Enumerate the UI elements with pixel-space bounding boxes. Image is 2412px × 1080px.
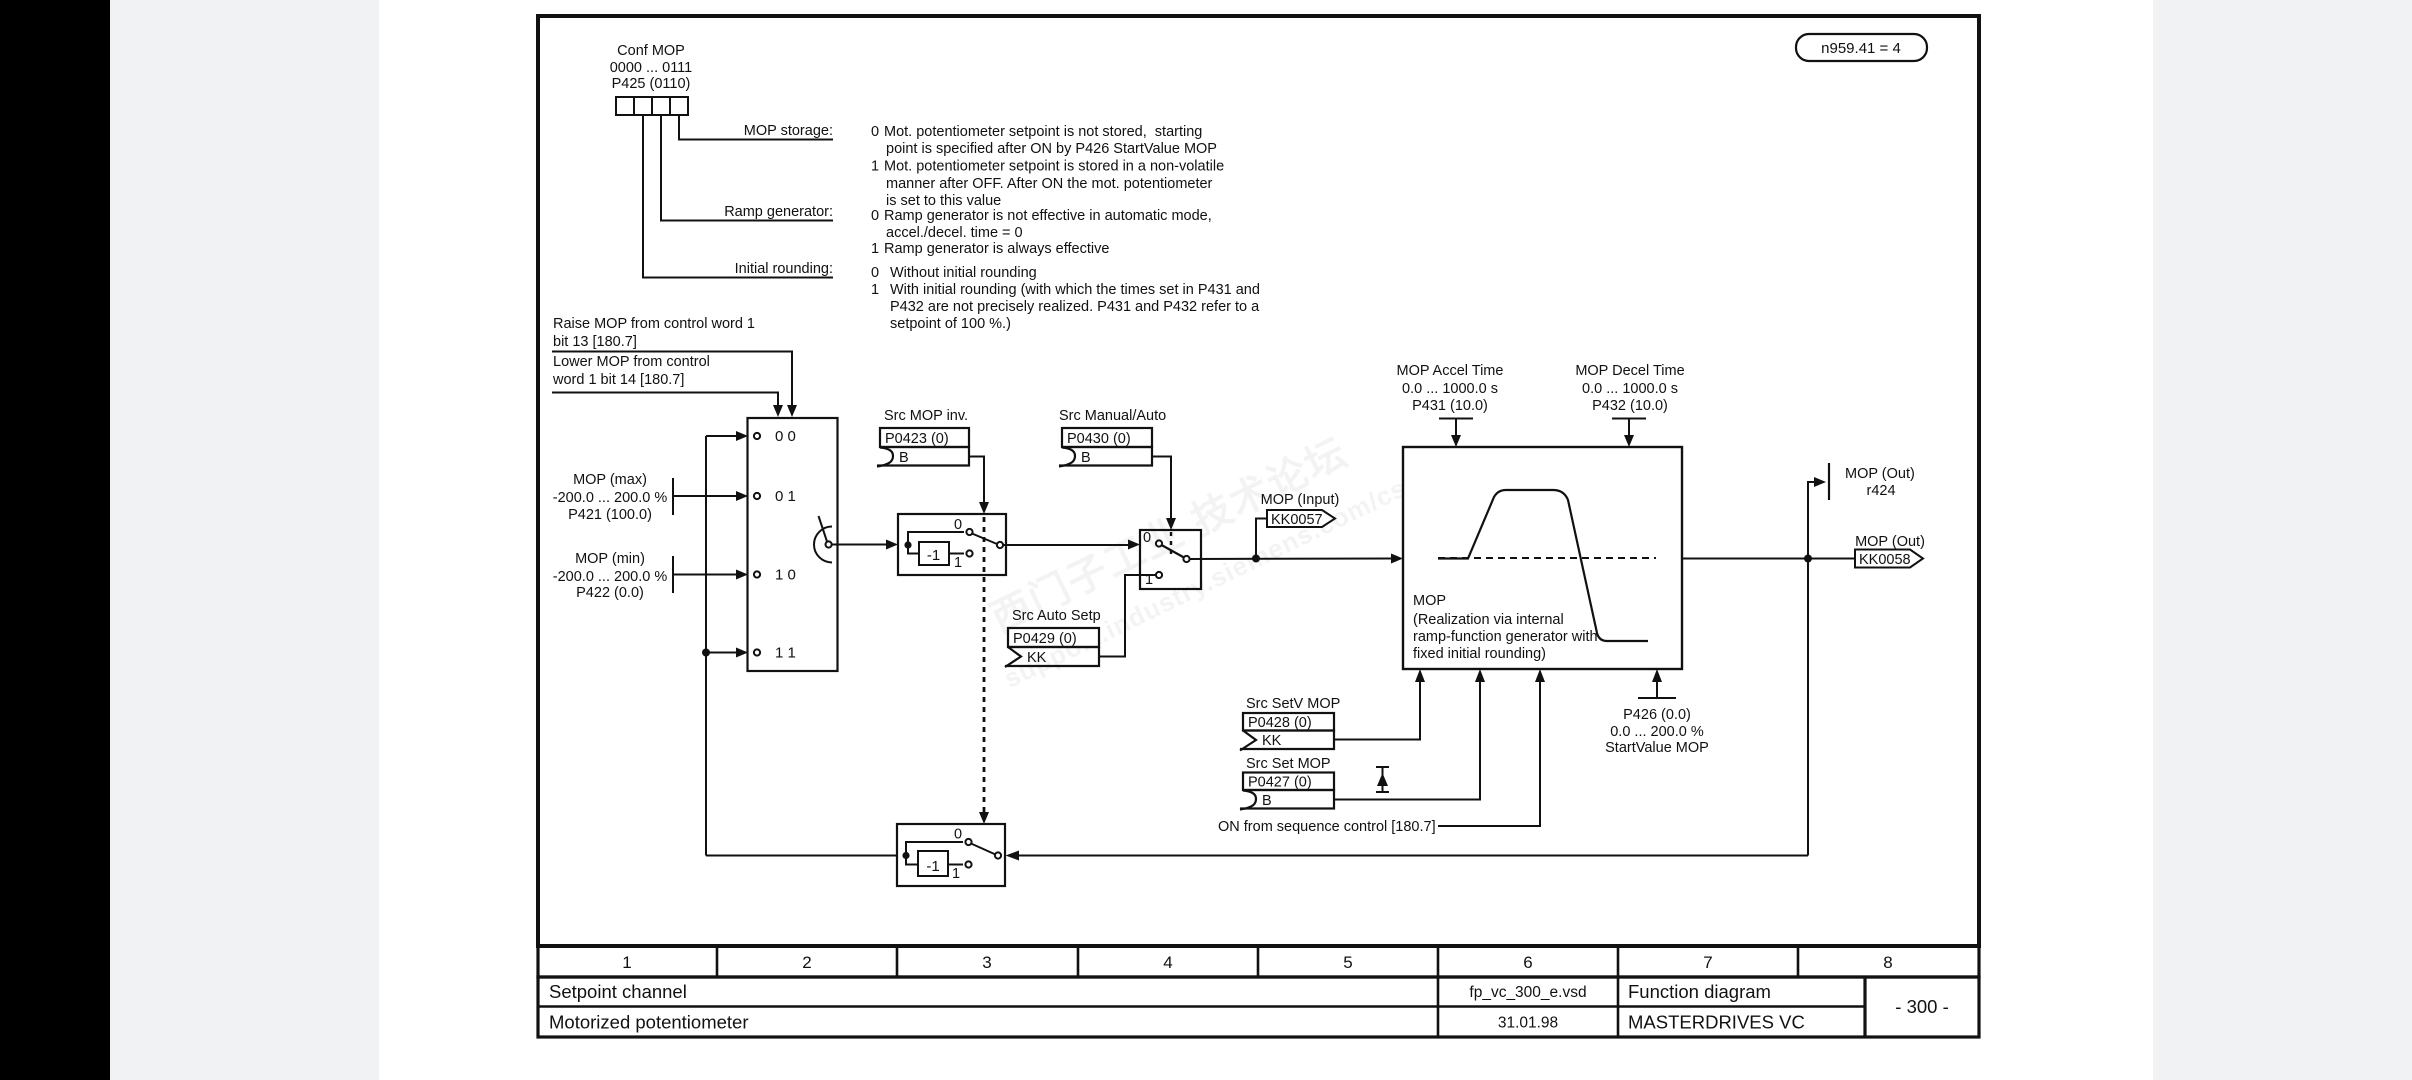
svg-text:0 1: 0 1 bbox=[775, 488, 796, 505]
svg-text:Raise MOP from control word 1: Raise MOP from control word 1 bbox=[553, 316, 755, 332]
svg-text:0: 0 bbox=[1143, 530, 1151, 546]
svg-text:0000 ... 0111: 0000 ... 0111 bbox=[610, 60, 693, 76]
svg-text:1: 1 bbox=[871, 159, 879, 175]
svg-text:5: 5 bbox=[1343, 953, 1352, 972]
svg-text:B: B bbox=[1081, 450, 1091, 466]
svg-text:word 1 bit 14 [180.7]: word 1 bit 14 [180.7] bbox=[552, 372, 684, 388]
svg-text:Mot. potentiometer setpoint is: Mot. potentiometer setpoint is not store… bbox=[884, 124, 1202, 140]
svg-text:3: 3 bbox=[982, 953, 991, 972]
svg-text:Ramp generator is not effectiv: Ramp generator is not effective in autom… bbox=[884, 208, 1212, 224]
svg-text:manner after OFF. After ON the: manner after OFF. After ON the mot. pote… bbox=[886, 176, 1213, 192]
svg-text:Setpoint channel: Setpoint channel bbox=[549, 981, 687, 1002]
svg-text:setpoint of 100 %.): setpoint of 100 %.) bbox=[890, 316, 1011, 332]
svg-text:P432 are not precisely realize: P432 are not precisely realized. P431 an… bbox=[890, 299, 1260, 315]
svg-text:0.0 ... 1000.0 s: 0.0 ... 1000.0 s bbox=[1402, 381, 1498, 397]
svg-text:P422 (0.0): P422 (0.0) bbox=[576, 585, 644, 601]
svg-text:1: 1 bbox=[871, 282, 879, 298]
svg-text:Conf MOP: Conf MOP bbox=[617, 43, 685, 59]
svg-text:ramp-function generator with: ramp-function generator with bbox=[1413, 629, 1598, 645]
svg-text:1 1: 1 1 bbox=[775, 645, 796, 662]
svg-text:fp_vc_300_e.vsd: fp_vc_300_e.vsd bbox=[1469, 984, 1586, 1001]
svg-text:P0423 (0): P0423 (0) bbox=[885, 431, 949, 447]
svg-text:-200.0 ... 200.0 %: -200.0 ... 200.0 % bbox=[553, 569, 668, 585]
svg-text:fixed initial rounding): fixed initial rounding) bbox=[1413, 646, 1546, 662]
svg-text:Src Auto Setp: Src Auto Setp bbox=[1012, 608, 1101, 624]
svg-text:B: B bbox=[899, 450, 909, 466]
svg-text:0: 0 bbox=[871, 208, 879, 224]
svg-text:- 300 -: - 300 - bbox=[1895, 996, 1948, 1017]
svg-text:StartValue MOP: StartValue MOP bbox=[1605, 740, 1709, 756]
svg-text:P0427 (0): P0427 (0) bbox=[1248, 775, 1312, 791]
svg-text:Ramp generator:: Ramp generator: bbox=[724, 204, 833, 220]
svg-text:ON from sequence control [180.: ON from sequence control [180.7] bbox=[1218, 819, 1436, 835]
svg-text:MOP: MOP bbox=[1413, 593, 1446, 609]
svg-text:Lower MOP from control: Lower MOP from control bbox=[553, 354, 710, 370]
svg-text:0.0 ... 200.0 %: 0.0 ... 200.0 % bbox=[1610, 724, 1704, 740]
svg-text:MOP storage:: MOP storage: bbox=[744, 123, 833, 139]
svg-text:1: 1 bbox=[954, 555, 962, 571]
svg-text:Function diagram: Function diagram bbox=[1628, 981, 1771, 1002]
svg-text:r424: r424 bbox=[1866, 483, 1895, 499]
svg-text:Src SetV MOP: Src SetV MOP bbox=[1246, 696, 1340, 712]
svg-text:MASTERDRIVES VC: MASTERDRIVES VC bbox=[1628, 1012, 1805, 1033]
svg-text:P431 (10.0): P431 (10.0) bbox=[1412, 398, 1488, 414]
svg-text:-1: -1 bbox=[927, 547, 940, 564]
svg-text:Src Set MOP: Src Set MOP bbox=[1246, 756, 1331, 772]
svg-text:0: 0 bbox=[871, 124, 879, 140]
svg-text:2: 2 bbox=[802, 953, 811, 972]
svg-text:0: 0 bbox=[871, 265, 879, 281]
svg-text:MOP (min): MOP (min) bbox=[575, 551, 645, 567]
svg-text:KK: KK bbox=[1262, 733, 1282, 749]
svg-text:0.0 ... 1000.0 s: 0.0 ... 1000.0 s bbox=[1582, 381, 1678, 397]
svg-text:31.01.98: 31.01.98 bbox=[1498, 1015, 1558, 1032]
svg-text:-200.0 ... 200.0 %: -200.0 ... 200.0 % bbox=[553, 490, 668, 506]
svg-text:MOP (max): MOP (max) bbox=[573, 472, 647, 488]
svg-text:(Realization via internal: (Realization via internal bbox=[1413, 612, 1564, 628]
svg-text:P0428 (0): P0428 (0) bbox=[1248, 715, 1312, 731]
svg-text:4: 4 bbox=[1163, 953, 1172, 972]
svg-text:7: 7 bbox=[1703, 953, 1712, 972]
svg-text:P421 (100.0): P421 (100.0) bbox=[568, 507, 652, 523]
svg-text:MOP (Out): MOP (Out) bbox=[1845, 466, 1915, 482]
svg-text:B: B bbox=[1262, 793, 1272, 809]
svg-text:P425 (0110): P425 (0110) bbox=[612, 76, 691, 92]
svg-text:-1: -1 bbox=[926, 858, 939, 875]
svg-text:MOP Accel Time: MOP Accel Time bbox=[1397, 363, 1504, 379]
svg-text:With initial rounding (with wh: With initial rounding (with which the ti… bbox=[890, 282, 1260, 298]
svg-text:Mot. potentiometer setpoint is: Mot. potentiometer setpoint is stored in… bbox=[884, 159, 1224, 175]
svg-text:Ramp generator is always effec: Ramp generator is always effective bbox=[884, 241, 1109, 257]
svg-text:P0429 (0): P0429 (0) bbox=[1013, 631, 1077, 647]
svg-text:0: 0 bbox=[954, 827, 962, 843]
svg-text:KK0058: KK0058 bbox=[1859, 552, 1911, 568]
svg-text:0 0: 0 0 bbox=[775, 428, 796, 445]
svg-text:is set to this value: is set to this value bbox=[886, 193, 1001, 209]
svg-text:6: 6 bbox=[1523, 953, 1532, 972]
svg-text:Src Manual/Auto: Src Manual/Auto bbox=[1059, 408, 1166, 424]
svg-text:Motorized potentiometer: Motorized potentiometer bbox=[549, 1012, 749, 1033]
svg-text:MOP Decel Time: MOP Decel Time bbox=[1575, 363, 1684, 379]
svg-text:accel./decel. time = 0: accel./decel. time = 0 bbox=[886, 225, 1023, 241]
svg-text:Without initial rounding: Without initial rounding bbox=[890, 265, 1037, 281]
svg-text:0: 0 bbox=[954, 517, 962, 533]
svg-text:Src MOP inv.: Src MOP inv. bbox=[884, 408, 968, 424]
svg-text:n959.41 = 4: n959.41 = 4 bbox=[1821, 40, 1901, 57]
svg-text:1: 1 bbox=[622, 953, 631, 972]
svg-text:MOP (Input): MOP (Input) bbox=[1261, 492, 1340, 508]
svg-text:8: 8 bbox=[1883, 953, 1892, 972]
svg-text:1: 1 bbox=[871, 241, 879, 257]
svg-text:KK: KK bbox=[1027, 650, 1047, 666]
svg-text:Initial rounding:: Initial rounding: bbox=[735, 261, 833, 277]
svg-text:1 0: 1 0 bbox=[775, 567, 796, 584]
svg-text:MOP (Out): MOP (Out) bbox=[1855, 534, 1925, 550]
svg-text:point is specified after ON by: point is specified after ON by P426 Star… bbox=[886, 141, 1217, 157]
svg-text:KK0057: KK0057 bbox=[1271, 512, 1323, 528]
svg-text:P432 (10.0): P432 (10.0) bbox=[1592, 398, 1668, 414]
svg-text:P0430 (0): P0430 (0) bbox=[1067, 431, 1131, 447]
svg-text:P426 (0.0): P426 (0.0) bbox=[1623, 707, 1691, 723]
svg-text:1: 1 bbox=[952, 866, 960, 882]
svg-text:bit 13 [180.7]: bit 13 [180.7] bbox=[553, 334, 637, 350]
